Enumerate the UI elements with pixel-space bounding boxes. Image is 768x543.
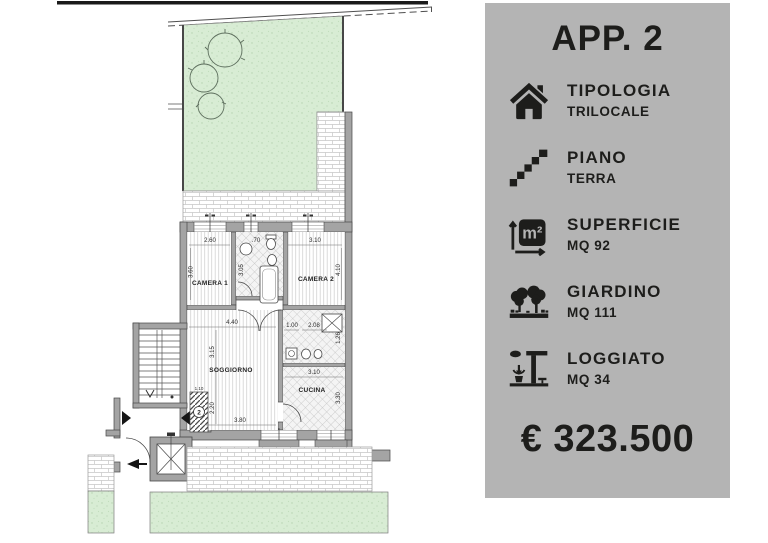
loggiato	[88, 447, 372, 491]
floor-plan: 2	[0, 0, 480, 543]
dim-camera1-depth: 3.60	[189, 266, 195, 278]
entrance-arrow	[127, 459, 139, 469]
sink	[240, 243, 252, 255]
area-icon-text: m²	[522, 224, 543, 242]
stairwell	[133, 323, 187, 408]
real-estate-flyer: 2	[0, 0, 768, 543]
toilet	[267, 239, 276, 250]
feature-label: LOGGIATO	[567, 350, 666, 369]
dim-entry-width: 1.10	[195, 386, 204, 391]
feature-value: MQ 111	[567, 305, 662, 320]
apartment-title: APP. 2	[485, 3, 730, 59]
feature-label: SUPERFICIE	[567, 216, 681, 235]
price: € 323.500	[485, 418, 730, 461]
lower-garden-strip	[88, 491, 388, 533]
stairs-icon	[505, 144, 552, 191]
feature-label: TIPOLOGIA	[567, 82, 671, 101]
feature-superficie: m² SUPERFICIE MQ 92	[485, 201, 730, 268]
entrance-door-arc	[126, 438, 150, 462]
feature-label: PIANO	[567, 149, 627, 168]
room-label-camera2: CAMERA 2	[298, 276, 334, 283]
feature-tipologia: TIPOLOGIA TRILOCALE	[485, 67, 730, 134]
feature-value: MQ 92	[567, 238, 681, 253]
dim-bath-depth: 3.05	[239, 264, 245, 276]
dim-soggiorno-bottom: 3.80	[234, 418, 246, 424]
dim-bath-window: .70	[252, 238, 261, 244]
feature-giardino: GIARDINO MQ 111	[485, 268, 730, 335]
dim-camera2-depth: 4.10	[336, 264, 342, 276]
unit-number: 2	[197, 410, 201, 417]
bidet	[268, 255, 277, 266]
feature-value: TERRA	[567, 171, 627, 186]
dim-soggiorno-width: 4.40	[226, 320, 238, 326]
info-panel: APP. 2 TIPOLOGIA TRILOCALE	[485, 3, 730, 498]
door-swing-left	[122, 411, 131, 425]
dim-cucina-depth: 3.30	[336, 392, 342, 404]
feature-list: TIPOLOGIA TRILOCALE PIANO TERRA	[485, 67, 730, 402]
feature-value: TRILOCALE	[567, 104, 671, 119]
dim-cucina-width: 3.10	[308, 370, 320, 376]
top-border-line	[57, 1, 428, 5]
dim-camera2-width: 3.10	[309, 238, 321, 244]
bidet	[314, 350, 322, 359]
dim-bath2-right: 2.08	[308, 323, 320, 329]
room-label-camera1: CAMERA 1	[192, 280, 228, 287]
loggia-icon	[505, 345, 552, 392]
feature-piano: PIANO TERRA	[485, 134, 730, 201]
dim-bath2-depth: 1.26	[336, 332, 342, 344]
dim-soggiorno-upper: 3.15	[210, 346, 216, 358]
room-label-soggiorno: SOGGIORNO	[209, 367, 253, 374]
dim-soggiorno-lower: 2.20	[210, 402, 216, 414]
garden-icon	[505, 278, 552, 325]
room-label-cucina: CUCINA	[298, 387, 325, 394]
area-icon: m²	[505, 211, 552, 258]
feature-loggiato: LOGGIATO MQ 34	[485, 335, 730, 402]
elevator	[150, 433, 192, 482]
dim-bath2-left: 1.00	[286, 323, 298, 329]
toilet	[302, 349, 311, 359]
washing-machine	[286, 348, 297, 359]
house-icon	[505, 77, 552, 124]
feature-value: MQ 34	[567, 372, 666, 387]
feature-label: GIARDINO	[567, 283, 662, 302]
dim-camera1-width: 2.60	[204, 238, 216, 244]
